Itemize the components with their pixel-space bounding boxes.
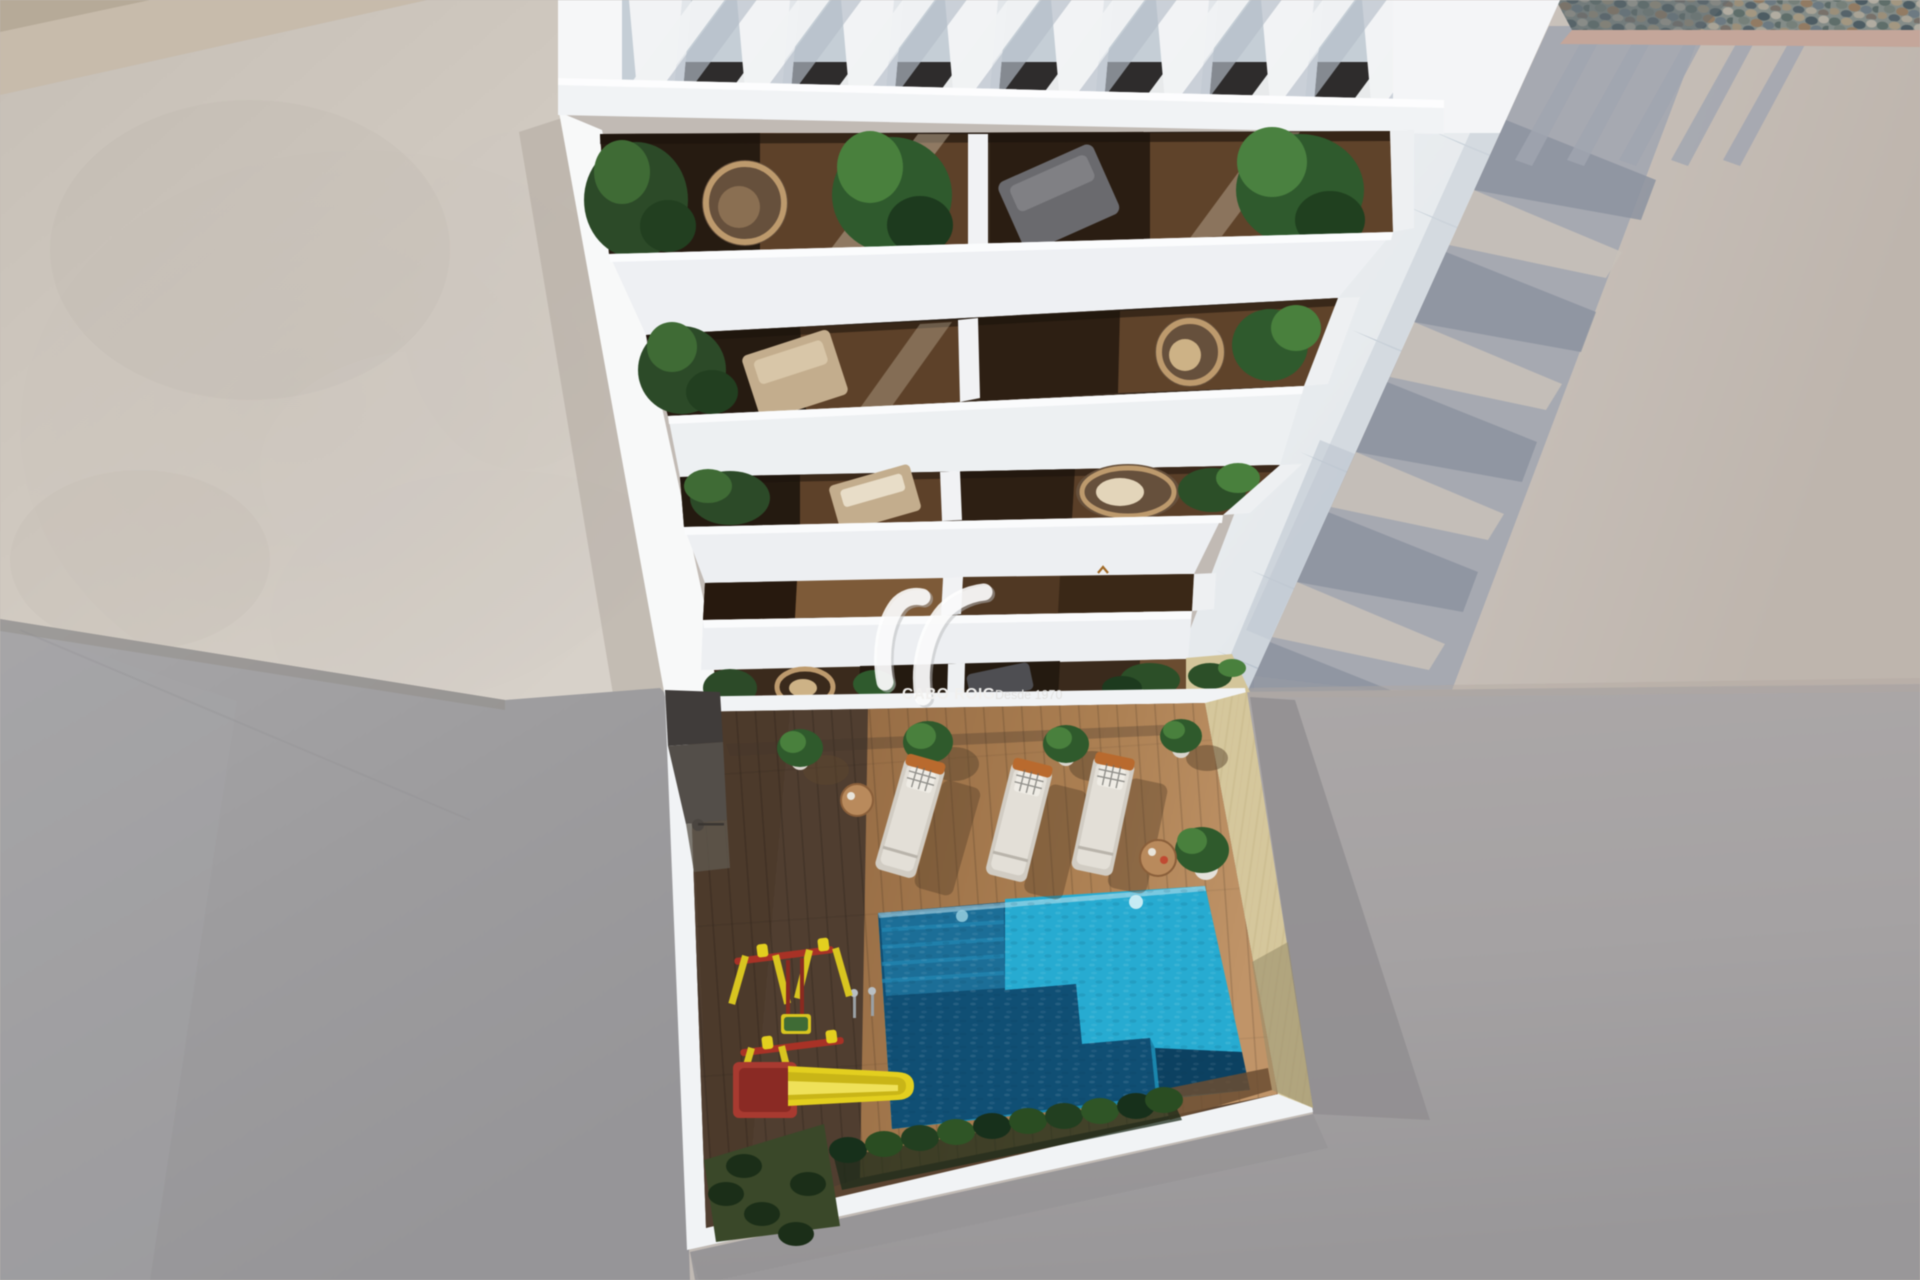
svg-text:Desde 1970: Desde 1970 (995, 688, 1062, 702)
svg-text:CABO ROIG: CABO ROIG (902, 686, 995, 703)
